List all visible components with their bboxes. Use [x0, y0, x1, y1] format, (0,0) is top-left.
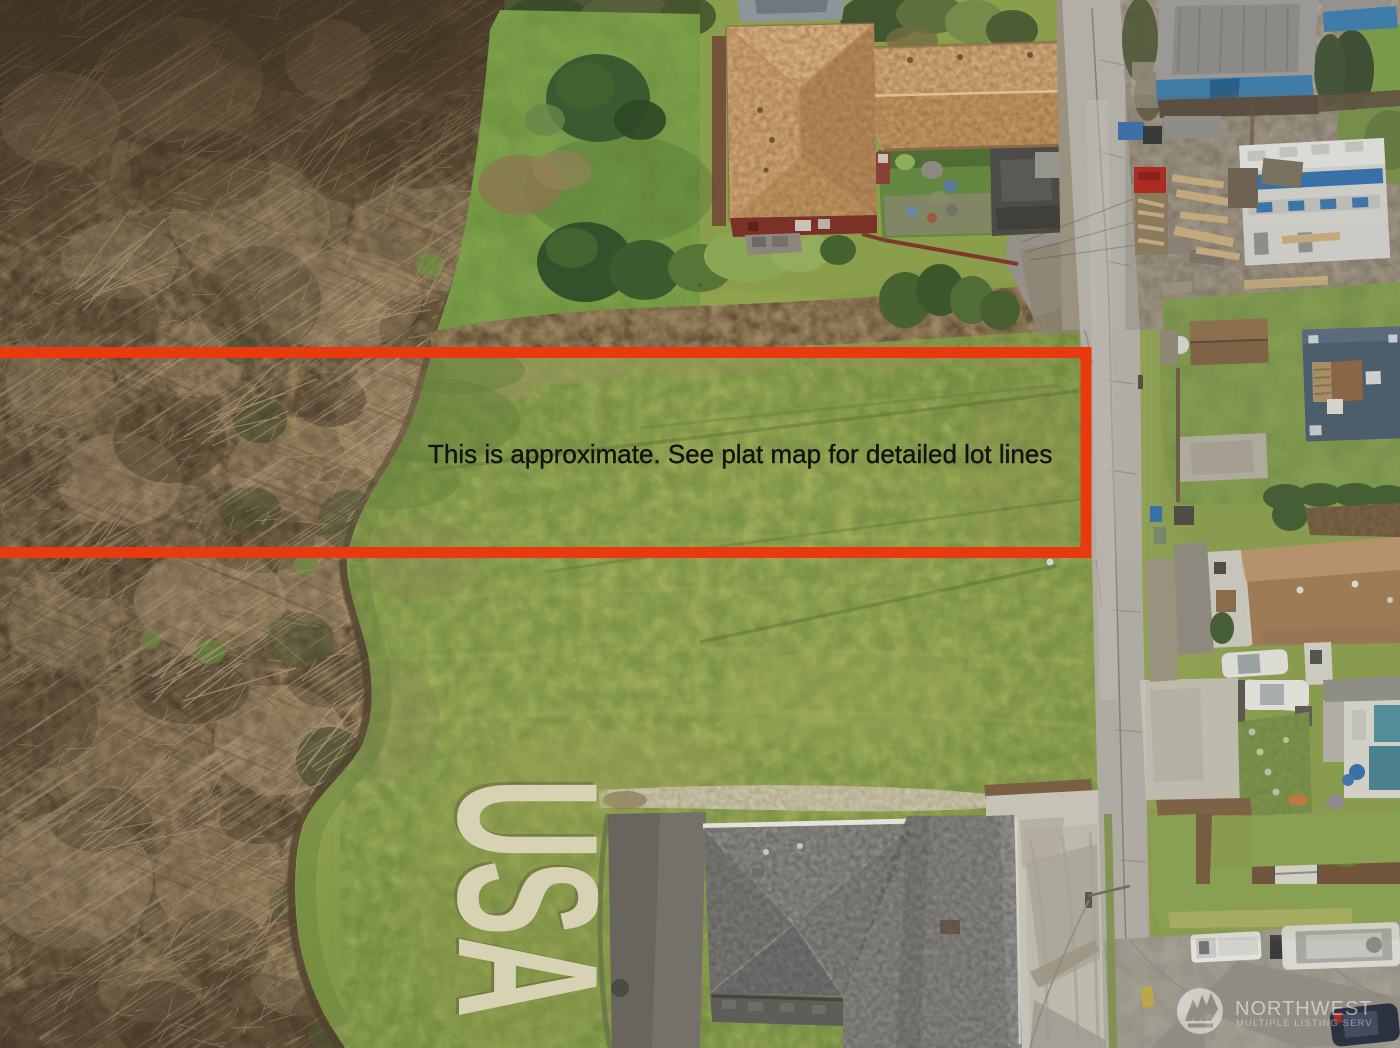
- svg-text:This is approximate. See plat: This is approximate. See plat map for de…: [428, 439, 1052, 469]
- svg-text:MULTIPLE LISTING SERV: MULTIPLE LISTING SERV: [1236, 1018, 1373, 1029]
- svg-text:NORTHWEST: NORTHWEST: [1235, 998, 1373, 1020]
